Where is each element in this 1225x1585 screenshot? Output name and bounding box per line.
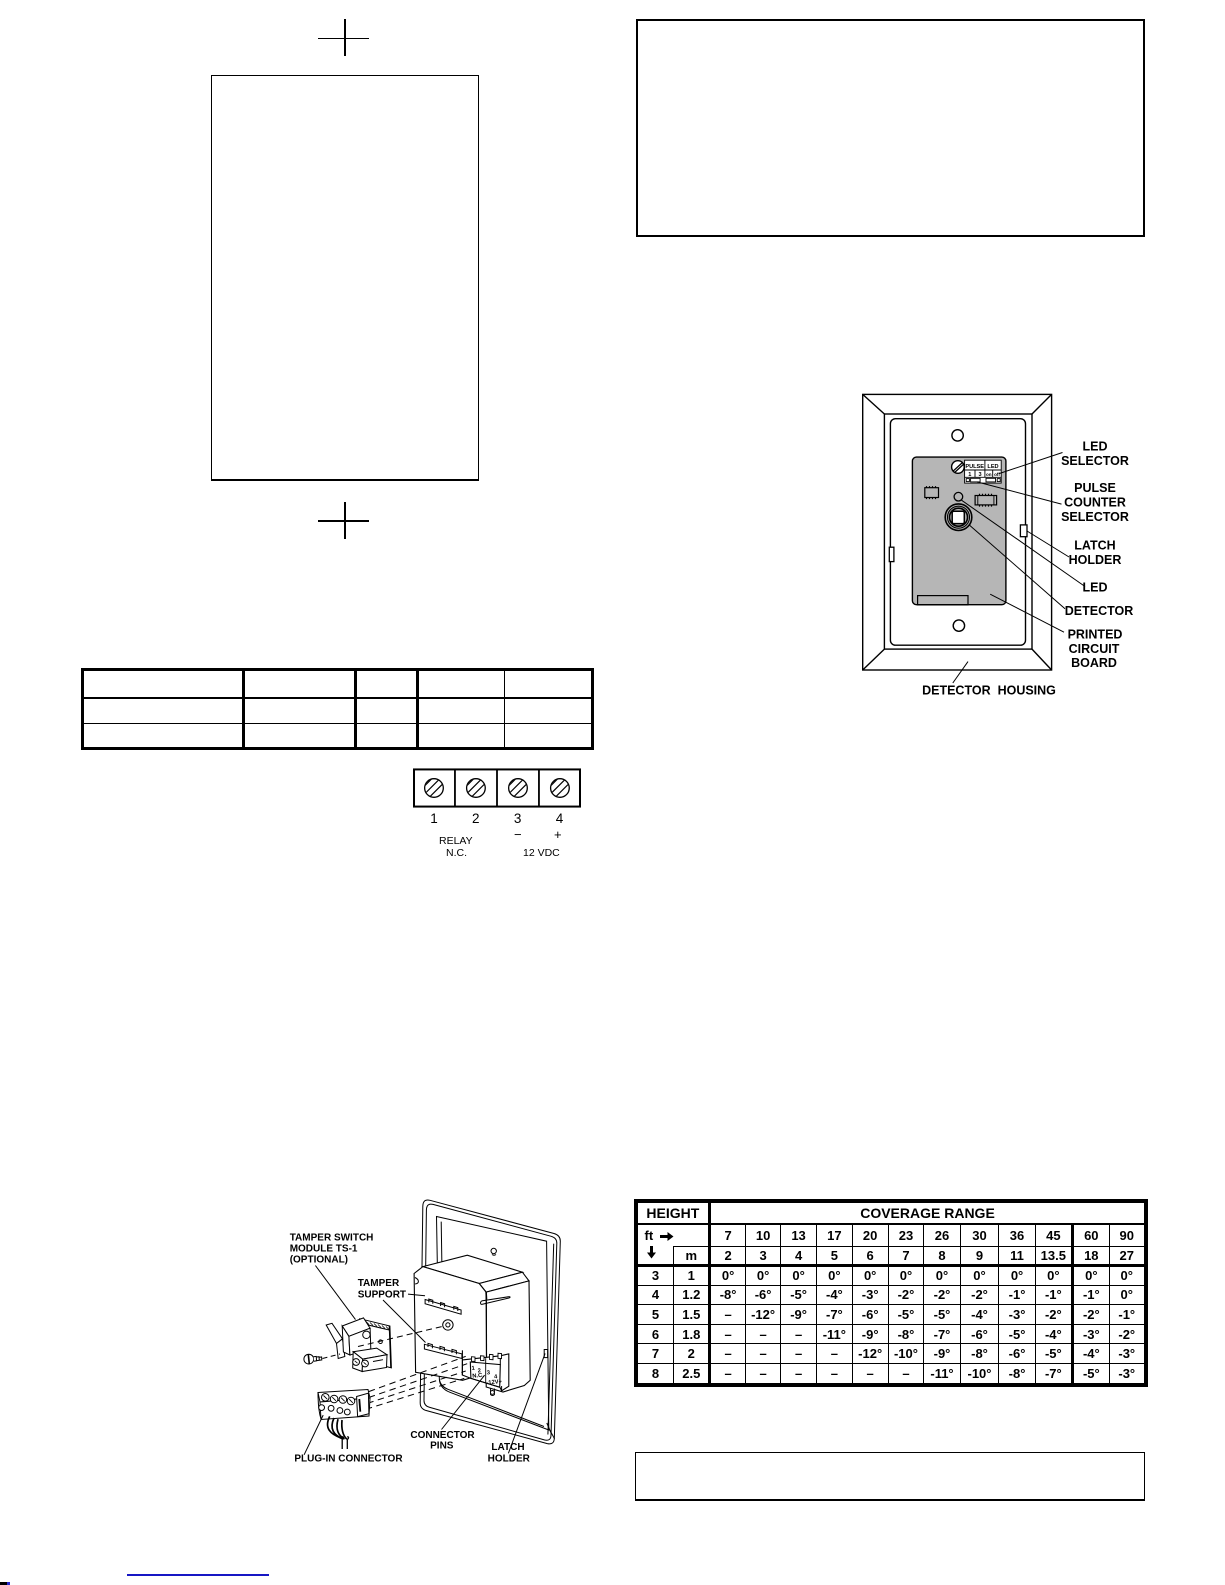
svg-text:LATCH: LATCH [491,1442,524,1453]
svg-text:DETECTOR: DETECTOR [1065,604,1134,618]
svg-text:MODULE TS-1: MODULE TS-1 [290,1243,358,1254]
svg-text:PULSE: PULSE [1074,481,1116,495]
svg-text:1: 1 [968,472,971,478]
svg-text:COUNTER: COUNTER [1064,496,1126,510]
svg-text:PULSE: PULSE [965,464,984,470]
svg-text:PLUG-IN CONNECTOR: PLUG-IN CONNECTOR [294,1454,403,1465]
svg-text:TAMPER SWITCH: TAMPER SWITCH [290,1232,374,1243]
svg-text:HOLDER: HOLDER [1069,553,1122,567]
svg-text:SELECTOR: SELECTOR [1061,510,1129,524]
svg-text:LED: LED [1083,581,1108,595]
svg-text:CIRCUIT: CIRCUIT [1069,642,1120,656]
svg-text:LED: LED [987,464,998,470]
svg-text:off: off [994,472,1000,477]
svg-text:3: 3 [978,472,981,478]
svg-text:TAMPER: TAMPER [358,1278,400,1289]
svg-text:on: on [986,472,992,477]
svg-text:HOLDER: HOLDER [488,1454,531,1465]
svg-text:CONNECTOR: CONNECTOR [410,1430,475,1441]
svg-text:N.C.: N.C. [472,1373,485,1380]
svg-text:PRINTED: PRINTED [1068,628,1123,642]
svg-text:SELECTOR: SELECTOR [1061,454,1129,468]
svg-text:(OPTIONAL): (OPTIONAL) [290,1255,348,1266]
svg-text:LATCH: LATCH [1074,539,1115,553]
svg-text:BOARD: BOARD [1071,656,1117,670]
svg-text:SUPPORT: SUPPORT [358,1290,406,1301]
svg-text:LED: LED [1083,440,1108,454]
svg-text:DETECTOR HOUSING: DETECTOR HOUSING [922,684,1056,698]
svg-text:PINS: PINS [430,1441,454,1452]
